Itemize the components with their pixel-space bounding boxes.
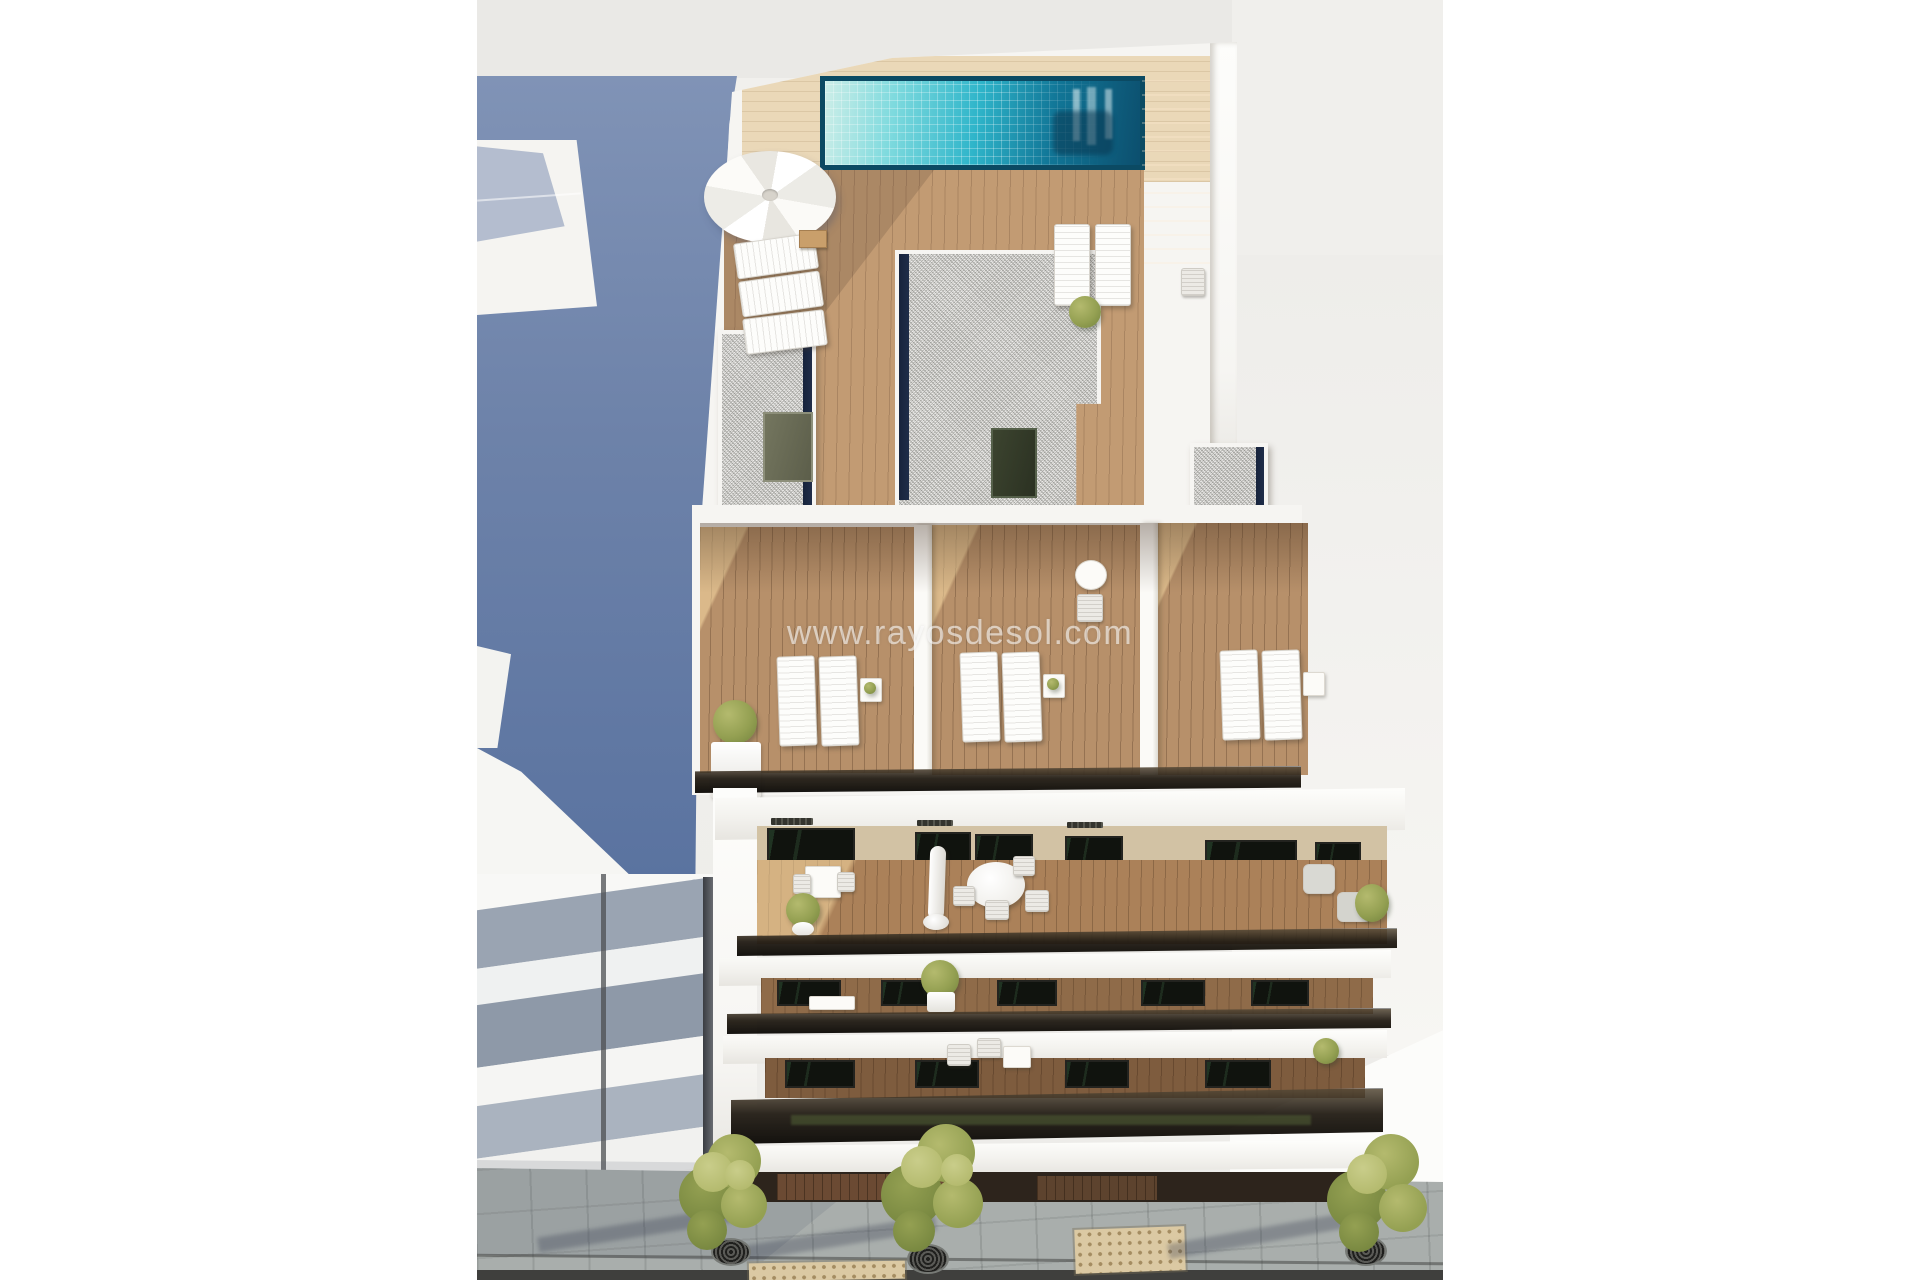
sun-lounger	[1219, 649, 1260, 740]
roof-right-parapet	[1210, 42, 1237, 510]
foliage	[893, 1210, 935, 1252]
dining-chair	[953, 886, 975, 906]
foliage	[1339, 1212, 1379, 1252]
dining-chair	[1013, 856, 1035, 876]
timber-side-table	[799, 230, 827, 248]
table-plant	[864, 682, 876, 694]
dining-chair	[985, 900, 1009, 920]
ground-floor-timber-cladding	[1037, 1176, 1157, 1200]
glass-door	[1251, 980, 1309, 1006]
dining-chair	[1025, 890, 1049, 912]
foliage	[901, 1146, 943, 1188]
foliage	[725, 1160, 755, 1190]
sun-lounger	[1001, 651, 1042, 742]
sun-lounger	[776, 655, 817, 746]
ac-vent	[1067, 822, 1103, 828]
screenshot-canvas: www.rayosdesol.com	[0, 0, 1920, 1280]
street-tree	[673, 1126, 773, 1266]
glass-door	[997, 980, 1057, 1006]
right-neighbour-roof-top	[1232, 0, 1443, 255]
roof-edge-shadow-gap	[899, 254, 909, 500]
foliage	[687, 1210, 727, 1250]
foliage	[1347, 1154, 1387, 1194]
sun-lounger	[818, 655, 859, 746]
swimming-pool	[820, 76, 1145, 170]
sun-lounger	[959, 651, 1000, 742]
watermark-text: www.rayosdesol.com	[787, 614, 1133, 653]
balcony-table	[809, 996, 855, 1010]
pool-dark-reflection	[1053, 111, 1113, 155]
road-strip	[477, 1270, 1443, 1280]
balcony-table	[1003, 1046, 1031, 1068]
balcony-chair	[947, 1044, 971, 1066]
balcony-chair	[977, 1038, 1001, 1058]
street-tree	[1321, 1126, 1437, 1266]
roof-access-door	[763, 412, 813, 482]
sun-lounger	[1095, 224, 1131, 306]
planter-shrub	[713, 700, 757, 744]
parasol-hub	[762, 189, 778, 201]
glass-door	[1141, 980, 1205, 1006]
glass-door	[1065, 1060, 1129, 1088]
street-tree	[877, 1114, 993, 1270]
sun-lounger	[1261, 649, 1302, 740]
sun-lounger	[1054, 224, 1090, 306]
balcony-recess	[761, 978, 1373, 1014]
potted-shrub	[1069, 296, 1101, 328]
expansion-joint-line	[601, 874, 606, 1174]
glass-door	[785, 1060, 855, 1088]
balcony-shrub	[1313, 1038, 1339, 1064]
deck-chair	[1181, 268, 1205, 296]
foliage	[1379, 1184, 1427, 1232]
shrub-pot	[792, 922, 814, 936]
hedge-behind-glass	[791, 1115, 1311, 1125]
roof-access-door	[991, 428, 1037, 498]
stairs-to-roof	[1142, 80, 1212, 270]
balcony-chair	[837, 872, 855, 892]
shrub-pot	[927, 992, 955, 1012]
lounger-side-table	[1303, 672, 1325, 696]
foliage	[941, 1154, 973, 1186]
ac-vent	[771, 818, 813, 825]
terrace-back-shadow	[700, 523, 1308, 593]
architectural-render-photo: www.rayosdesol.com	[477, 0, 1443, 1280]
glass-door	[1205, 1060, 1271, 1088]
closed-parasol	[928, 846, 947, 921]
ground-floor-facade	[733, 1172, 1353, 1202]
ac-vent	[917, 820, 953, 826]
table-plant	[1047, 678, 1059, 690]
bistro-table	[1075, 560, 1107, 590]
balcony-chair	[793, 874, 811, 894]
balcony-shrub	[1355, 884, 1389, 922]
parasol-base	[923, 914, 949, 930]
lounge-armchair	[1303, 864, 1335, 894]
